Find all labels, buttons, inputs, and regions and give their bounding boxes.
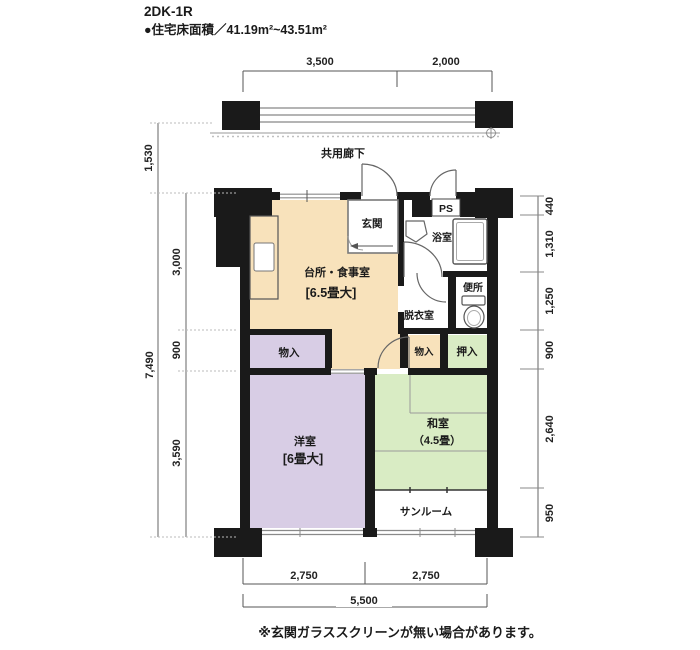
japanese-room-size-label: （4.5畳） [413, 434, 461, 447]
dim-right-6: 950 [544, 504, 556, 522]
dim-right-5: 2,640 [544, 415, 556, 443]
dim-right-1: 440 [544, 197, 556, 215]
genkan-label: 玄関 [362, 217, 383, 230]
dk-hall-floor [331, 332, 400, 369]
window-bottom-sunroom [377, 528, 475, 537]
sunroom-label: サンルーム [400, 506, 453, 518]
right-dimension-lines [520, 196, 544, 537]
left-dimension-lines [150, 123, 238, 537]
door-bath [404, 242, 442, 277]
dim-right-4: 900 [544, 341, 556, 359]
toilet-label: 便所 [463, 281, 483, 294]
footnote: ※玄関ガラススクリーンが無い場合があります。 [258, 625, 541, 640]
page-title: 2DK-1R [144, 4, 193, 19]
pillar-top-left [214, 188, 272, 217]
pillar-top-right [475, 188, 513, 218]
corridor-railing [258, 108, 477, 122]
dim-top-left: 3,500 [306, 56, 334, 68]
dk-size-label: [6.5畳大] [306, 285, 357, 300]
ps-label: PS [439, 203, 453, 215]
dim-left-balcony: 1,530 [143, 144, 155, 172]
dim-bottom-total: 5,500 [350, 595, 378, 607]
pillar-bottom-right [475, 528, 513, 557]
kitchen-sink-icon [254, 243, 274, 271]
dim-top-right: 2,000 [432, 56, 460, 68]
dim-left-middle: 900 [171, 341, 183, 359]
western-room-label: 洋室 [294, 434, 316, 448]
dim-bottom-left: 2,750 [290, 570, 318, 582]
wall-bedroom-divider [365, 375, 375, 528]
dim-left-total: 7,490 [144, 351, 156, 379]
western-room-size-label: [6畳大] [283, 451, 323, 466]
dressing-label: 脱衣室 [404, 309, 434, 322]
japanese-room-floor [375, 374, 487, 490]
top-dimension [243, 71, 492, 92]
dim-right-3: 1,250 [544, 287, 556, 315]
japanese-room-label: 和室 [427, 416, 449, 430]
survey-mark-icon [485, 127, 497, 139]
corridor-label: 共用廊下 [321, 146, 365, 160]
window-bottom-western [262, 528, 363, 537]
kitchen-counter [250, 216, 278, 299]
door-ps [430, 170, 456, 196]
storage-mid-label: 物入 [414, 346, 434, 358]
dim-bottom-right: 2,750 [412, 570, 440, 582]
pillar-bottom-left [214, 528, 262, 557]
floor-plan-page: 2DK-1R ●住宅床面積／41.19m²~43.51m² 3,500 2,00… [0, 0, 700, 650]
floor-plan-drawing: 2DK-1R ●住宅床面積／41.19m²~43.51m² 3,500 2,00… [0, 0, 700, 650]
storage-left-label: 物入 [279, 346, 300, 359]
washbasin-icon [406, 221, 427, 242]
ground-hatch-line [210, 133, 500, 137]
bath-label: 浴室 [432, 231, 452, 244]
western-room-floor [250, 374, 365, 528]
dk-label: 台所・食事室 [304, 265, 370, 279]
door-entrance [362, 164, 397, 196]
dim-left-upper: 3,000 [171, 248, 183, 276]
dim-left-lower: 3,590 [171, 439, 183, 467]
door-dressing [417, 273, 446, 302]
toilet-icon [462, 296, 485, 328]
dim-right-2: 1,310 [544, 230, 556, 258]
oshiire-label: 押入 [457, 345, 478, 358]
sliding-door-western [331, 370, 364, 373]
bathtub-icon [453, 219, 487, 264]
floor-area-subtitle: ●住宅床面積／41.19m²~43.51m² [144, 22, 327, 37]
